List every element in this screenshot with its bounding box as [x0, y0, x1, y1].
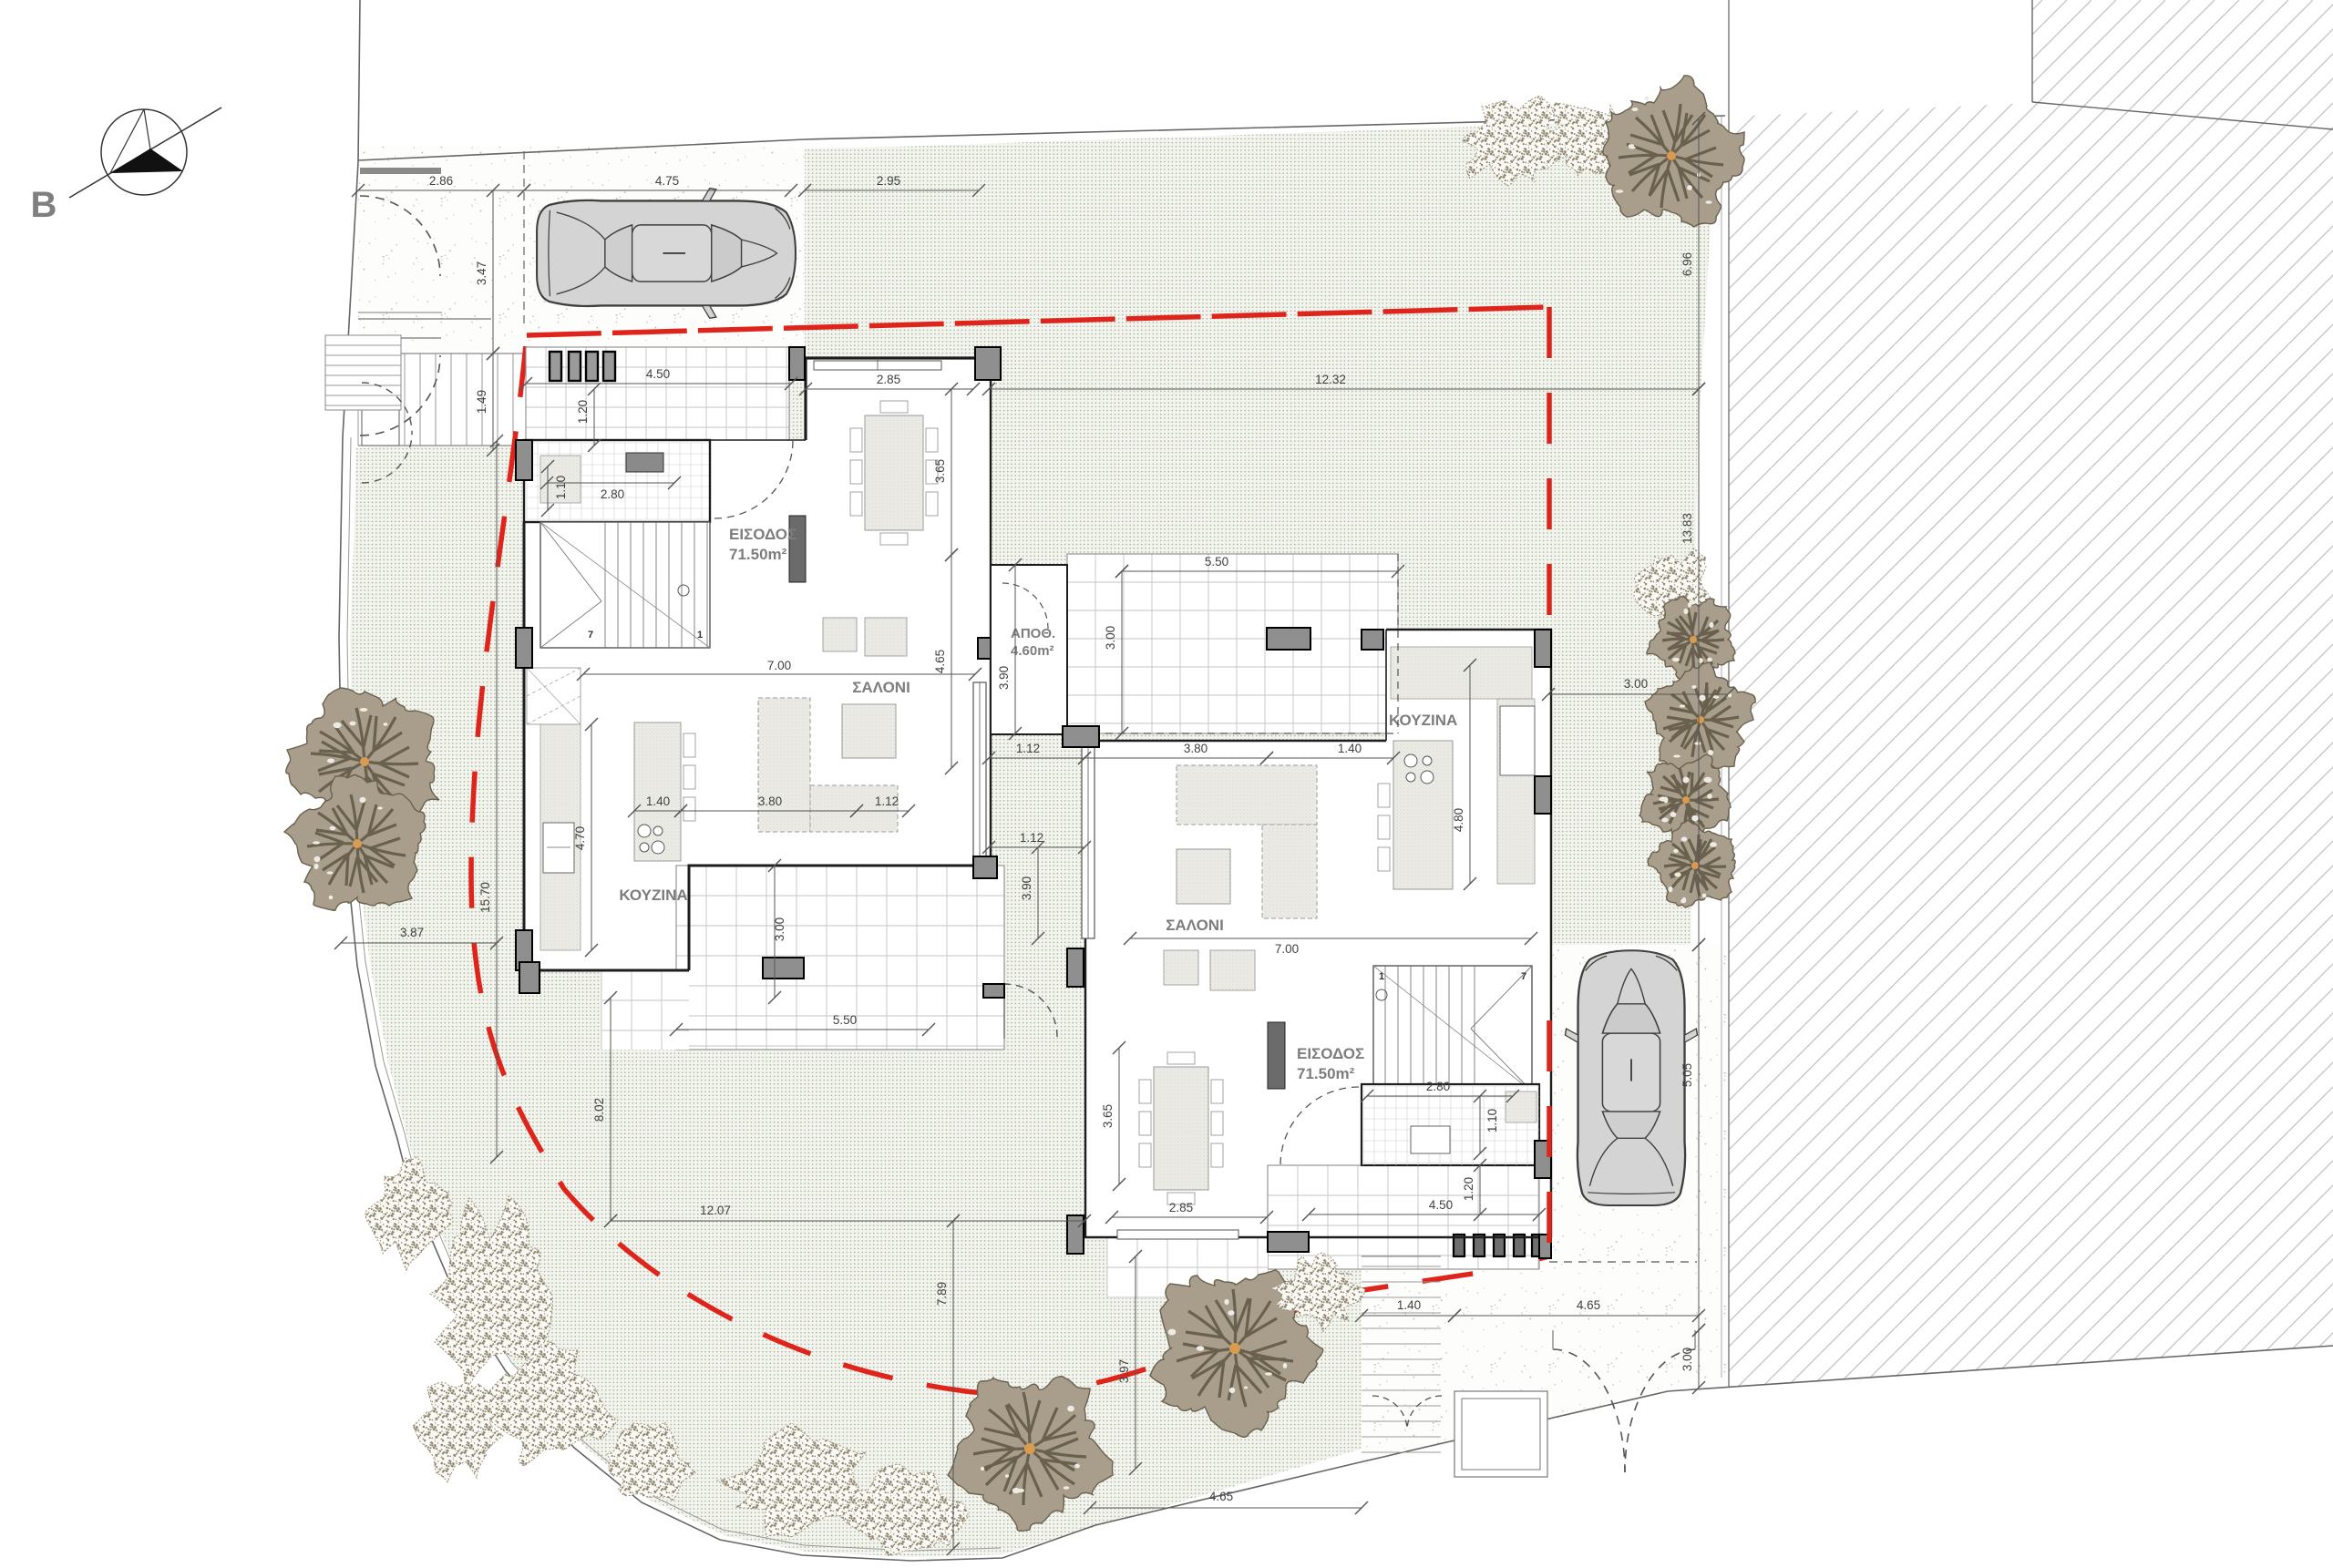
svg-text:2.85: 2.85: [1169, 1201, 1193, 1214]
svg-text:12.07: 12.07: [700, 1204, 731, 1217]
svg-text:3.80: 3.80: [758, 794, 782, 808]
svg-text:ΚΟΥΖΙΝΑ: ΚΟΥΖΙΝΑ: [1389, 712, 1457, 729]
svg-text:3.65: 3.65: [1101, 1104, 1115, 1128]
svg-text:5.50: 5.50: [833, 1013, 857, 1027]
svg-text:2.80: 2.80: [601, 487, 624, 501]
svg-text:3.00: 3.00: [1104, 626, 1117, 650]
svg-text:ΕΙΣΟΔΟΣ: ΕΙΣΟΔΟΣ: [729, 526, 797, 543]
svg-text:3.00: 3.00: [1624, 677, 1648, 691]
svg-text:4.50: 4.50: [646, 367, 670, 381]
svg-text:5.50: 5.50: [1205, 555, 1228, 569]
svg-text:3.90: 3.90: [1020, 876, 1033, 900]
svg-text:B: B: [31, 185, 57, 225]
svg-text:4.50: 4.50: [1429, 1198, 1453, 1212]
svg-text:1: 1: [1379, 971, 1384, 982]
svg-text:1.10: 1.10: [554, 476, 568, 499]
svg-text:4.60m²: 4.60m²: [1011, 643, 1054, 659]
svg-text:1.40: 1.40: [1338, 742, 1362, 755]
svg-text:8.02: 8.02: [592, 1098, 606, 1122]
svg-text:ΕΙΣΟΔΟΣ: ΕΙΣΟΔΟΣ: [1297, 1045, 1364, 1062]
svg-text:4.80: 4.80: [1452, 808, 1465, 832]
svg-text:4.70: 4.70: [573, 826, 587, 850]
svg-text:7: 7: [588, 630, 593, 641]
svg-text:15.70: 15.70: [478, 882, 492, 913]
svg-text:ΣΑΛΟΝΙ: ΣΑΛΟΝΙ: [852, 679, 910, 696]
svg-text:7.89: 7.89: [935, 1282, 949, 1306]
svg-text:5.05: 5.05: [1680, 1063, 1694, 1087]
svg-text:6.96: 6.96: [1680, 252, 1694, 276]
svg-text:71.50m²: 71.50m²: [729, 546, 787, 563]
svg-text:3.00: 3.00: [1680, 1348, 1694, 1371]
svg-text:7.00: 7.00: [767, 659, 791, 672]
svg-text:7: 7: [1521, 971, 1526, 982]
svg-text:2.95: 2.95: [877, 174, 900, 188]
svg-text:1.20: 1.20: [576, 400, 590, 424]
svg-text:3.97: 3.97: [1117, 1359, 1131, 1383]
svg-text:1.10: 1.10: [1485, 1109, 1499, 1132]
svg-text:ΣΑΛΟΝΙ: ΣΑΛΟΝΙ: [1166, 917, 1224, 934]
svg-text:ΑΠΟΘ.: ΑΠΟΘ.: [1011, 626, 1055, 641]
svg-text:1.20: 1.20: [1462, 1177, 1475, 1201]
svg-text:4.75: 4.75: [655, 174, 679, 188]
svg-text:3.87: 3.87: [400, 926, 424, 939]
svg-text:2.80: 2.80: [1426, 1080, 1450, 1093]
svg-text:4.65: 4.65: [1577, 1298, 1600, 1312]
svg-text:1.40: 1.40: [646, 794, 670, 808]
svg-text:2.85: 2.85: [877, 373, 900, 386]
svg-text:12.32: 12.32: [1315, 373, 1346, 386]
svg-text:3.47: 3.47: [475, 261, 488, 285]
svg-text:4.65: 4.65: [933, 650, 947, 673]
svg-text:1: 1: [697, 630, 703, 641]
svg-text:1.40: 1.40: [1397, 1298, 1421, 1312]
svg-text:13.83: 13.83: [1680, 513, 1694, 544]
svg-text:3.65: 3.65: [933, 459, 947, 483]
svg-text:2.86: 2.86: [429, 174, 453, 188]
svg-text:3.90: 3.90: [997, 666, 1011, 690]
svg-text:1.12: 1.12: [875, 794, 899, 808]
svg-text:ΚΟΥΖΙΝΑ: ΚΟΥΖΙΝΑ: [619, 886, 687, 904]
svg-text:71.50m²: 71.50m²: [1297, 1065, 1355, 1082]
svg-text:3.00: 3.00: [773, 917, 786, 941]
svg-text:1.12: 1.12: [1020, 831, 1043, 845]
svg-text:4.65: 4.65: [1209, 1490, 1233, 1503]
svg-text:3.80: 3.80: [1184, 742, 1208, 755]
svg-text:1.49: 1.49: [475, 390, 488, 414]
svg-text:1.12: 1.12: [1016, 742, 1040, 755]
svg-text:7.00: 7.00: [1275, 942, 1299, 956]
